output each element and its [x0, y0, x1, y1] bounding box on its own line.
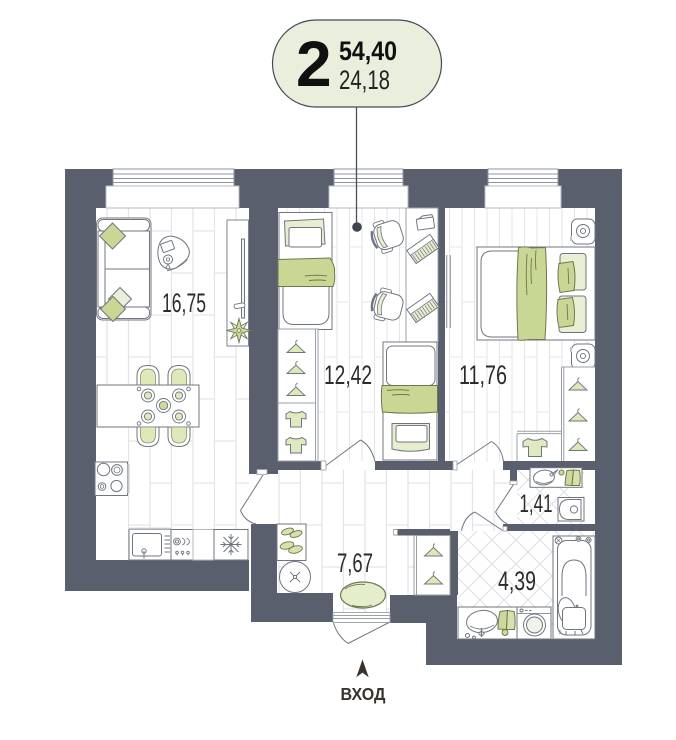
svg-text:16,75: 16,75	[162, 288, 206, 318]
svg-text:24,18: 24,18	[339, 65, 390, 95]
svg-text:54,40: 54,40	[339, 36, 397, 66]
svg-text:4,39: 4,39	[498, 566, 536, 596]
svg-text:7,67: 7,67	[337, 548, 373, 578]
svg-text:2: 2	[296, 28, 332, 100]
svg-text:1,41: 1,41	[520, 490, 553, 518]
svg-text:11,76: 11,76	[459, 360, 507, 390]
svg-text:12,42: 12,42	[324, 360, 372, 390]
svg-text:ВХОД: ВХОД	[341, 684, 386, 704]
